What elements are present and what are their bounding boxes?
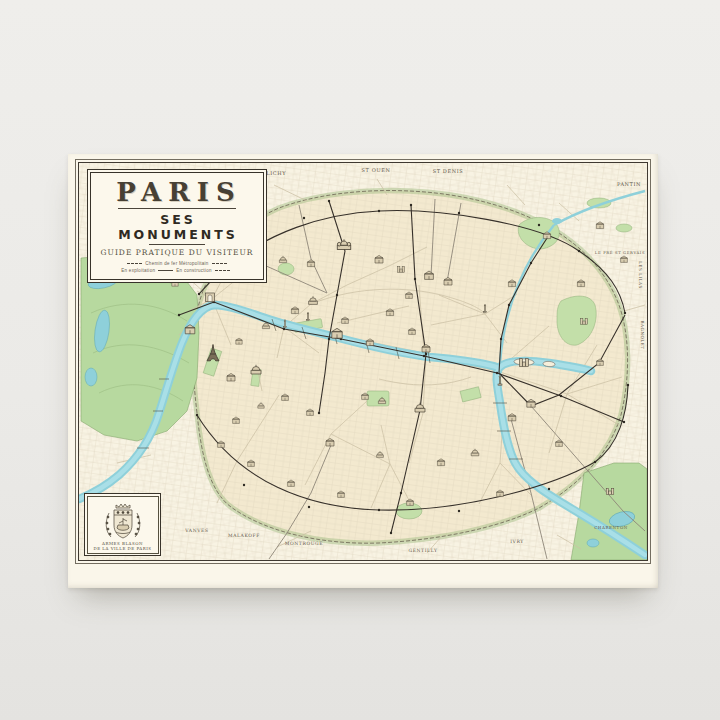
label-gentilly: GENTILLY xyxy=(408,548,437,553)
label-st-ouen: ST OUEN xyxy=(362,167,391,173)
legend-row-status: En exploitationEn construction xyxy=(95,267,259,274)
coat-of-arms-caption-2: DE LA VILLE DE PARIS xyxy=(93,546,151,551)
metro-line-symbol-2 xyxy=(212,263,227,264)
title-cartouche-inner: PARIS SES MONUMENTS GUIDE PRATIQUE DU VI… xyxy=(90,172,264,280)
open-line-symbol xyxy=(158,270,173,271)
metro-line-symbol xyxy=(127,263,142,264)
divider xyxy=(118,208,236,209)
coat-of-arms-inset: ARMES BLASON DE LA VILLE DE PARIS xyxy=(84,493,161,556)
map-subtitle: SES MONUMENTS xyxy=(97,212,259,242)
title-cartouche: PARIS SES MONUMENTS GUIDE PRATIQUE DU VI… xyxy=(87,169,267,283)
map-print-canvas[interactable]: LEVALLOIS-PERRET CLICHY ST OUEN ST DENIS… xyxy=(68,154,658,588)
label-bagnolet: BAGNOLET xyxy=(640,321,645,350)
label-le-pre-st-gervais: LE PRÉ ST GERVAIS xyxy=(595,250,645,255)
coat-of-arms-inner: ARMES BLASON DE LA VILLE DE PARIS xyxy=(87,496,159,554)
label-vanves: VANVES xyxy=(184,528,208,533)
label-malakoff: MALAKOFF xyxy=(228,533,260,538)
paris-coat-of-arms-icon xyxy=(101,501,145,541)
label-les-lilas: LES LILAS xyxy=(638,261,643,289)
arc-de-triomphe-icon xyxy=(205,293,214,302)
label-charenton: CHARENTON xyxy=(594,525,628,530)
map-title: PARIS xyxy=(99,179,259,206)
legend-metro-label: Chemin de fer Métropolitain xyxy=(145,261,208,266)
label-montrouge: MONTROUGE xyxy=(285,541,323,546)
studio-background: LEVALLOIS-PERRET CLICHY ST OUEN ST DENIS… xyxy=(0,0,720,720)
map-frame: LEVALLOIS-PERRET CLICHY ST OUEN ST DENIS… xyxy=(78,162,648,561)
divider-small xyxy=(149,244,205,245)
label-ivry: IVRY xyxy=(510,539,524,544)
legend-construction-label: En construction xyxy=(176,268,212,273)
map-tagline: GUIDE PRATIQUE DU VISITEUR xyxy=(95,248,259,257)
legend-open-label: En exploitation xyxy=(121,268,155,273)
label-st-denis: ST DENIS xyxy=(433,168,464,174)
label-pantin: PANTIN xyxy=(617,181,641,187)
legend-row-metro: Chemin de fer Métropolitain xyxy=(95,260,259,267)
construction-line-symbol xyxy=(215,270,230,271)
